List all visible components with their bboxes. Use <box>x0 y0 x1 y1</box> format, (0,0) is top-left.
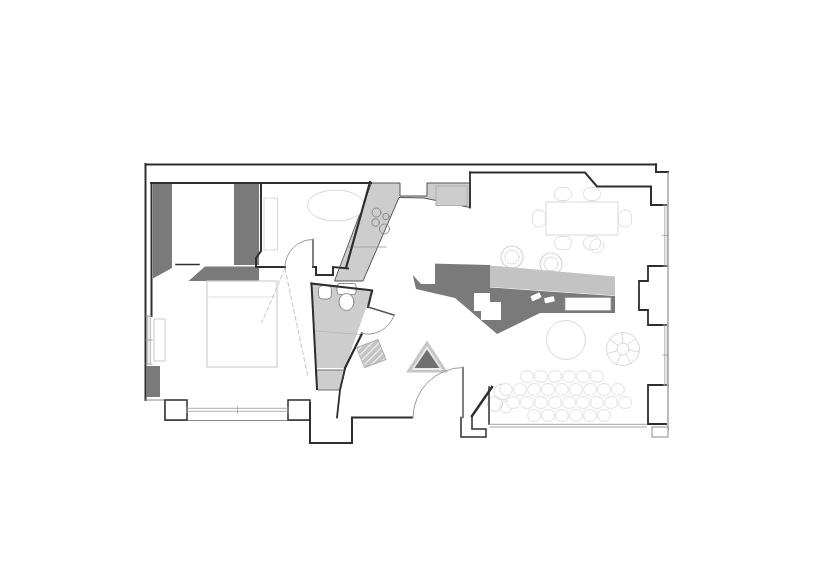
rug-pebble <box>549 371 561 383</box>
rug-pebble <box>528 410 540 422</box>
rug-pebble <box>591 397 603 409</box>
toilet-bowl <box>339 294 354 311</box>
rug-pebble <box>535 397 547 409</box>
dining-chair <box>584 237 601 250</box>
floor-plan-page <box>0 0 818 578</box>
rug-pebble <box>577 397 589 409</box>
rug-pebble <box>563 397 575 409</box>
dining-chair <box>584 188 601 201</box>
flower-pouf-spoke <box>622 333 623 344</box>
rug-pebble <box>619 397 631 409</box>
kitchen-appliance <box>436 186 467 206</box>
bed <box>207 281 277 367</box>
rug-pebble <box>507 397 519 409</box>
rug-pebble <box>549 397 561 409</box>
rug-pebble <box>577 371 589 383</box>
flower-pouf <box>607 333 640 366</box>
rug-pebble <box>584 410 596 422</box>
wall-pier <box>288 400 310 420</box>
rug-pebble <box>521 397 533 409</box>
rug-pebble <box>570 384 582 396</box>
rug-pebble <box>535 371 547 383</box>
dining-chair <box>555 188 572 201</box>
rug-pebble <box>521 371 533 383</box>
dining-chair <box>555 237 572 250</box>
rug-pebble <box>556 384 568 396</box>
wall-corner-bottom-right <box>648 385 666 424</box>
tall-cabinet <box>264 198 278 250</box>
plan-background <box>0 0 818 578</box>
rug-pebble <box>605 397 617 409</box>
dining-chair <box>619 210 632 227</box>
bathroom-sink <box>319 286 332 300</box>
rug-pebble <box>584 384 596 396</box>
bar-stool <box>501 246 523 268</box>
island-shelf <box>565 298 611 311</box>
rug-pebble <box>514 384 526 396</box>
radiator <box>147 366 161 397</box>
rug-pebble <box>542 384 554 396</box>
wardrobe-right <box>234 184 259 265</box>
rug-pebble <box>556 410 568 422</box>
rug-pebble <box>598 384 610 396</box>
rug-pebble <box>563 371 575 383</box>
oval-table <box>308 190 365 221</box>
rug-pebble <box>528 384 540 396</box>
rug-pebble <box>612 384 624 396</box>
wall-pier <box>165 400 187 420</box>
floor-plan-canvas <box>0 0 818 578</box>
rug-pebble <box>542 410 554 422</box>
rug-pebble <box>500 384 512 396</box>
dining-chair <box>533 210 546 227</box>
wardrobe-left <box>153 184 172 279</box>
wall-step-bottom-right <box>652 427 668 437</box>
rug-pebble <box>570 410 582 422</box>
rug-pebble <box>591 371 603 383</box>
dining-table <box>546 202 618 235</box>
pouf <box>547 321 586 360</box>
rug-pebble <box>598 410 610 422</box>
